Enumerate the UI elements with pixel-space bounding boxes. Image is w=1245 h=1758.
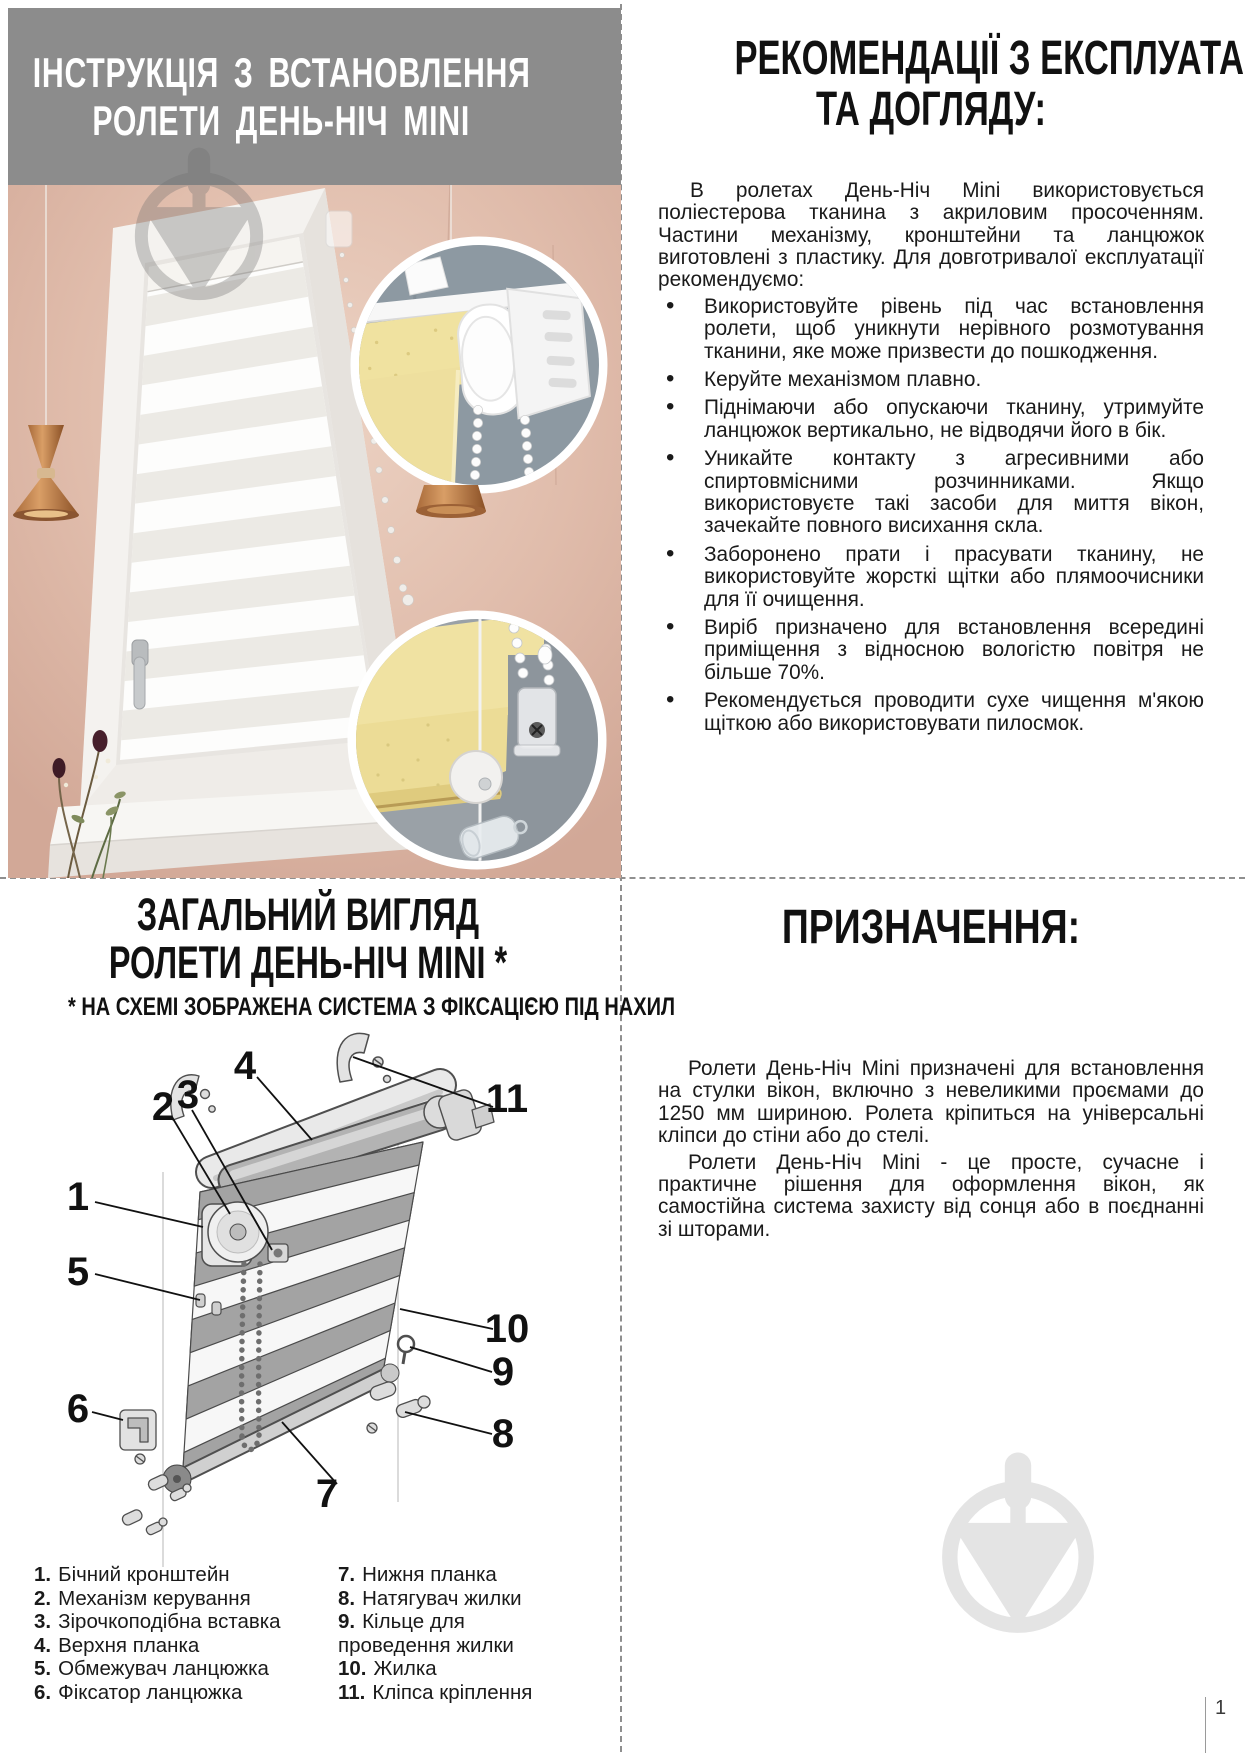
blind-diagram: 1 2 3 4 5 6 7 8 9 10 11 <box>20 1022 600 1567</box>
purpose-title: ПРИЗНАЧЕННЯ: <box>658 903 1204 954</box>
part-item: 5.Обмежувач ланцюжка <box>34 1657 334 1681</box>
product-photo-illustration <box>8 185 621 878</box>
part-item: 9.Кільце для проведення жилки <box>338 1610 563 1657</box>
part-item: 4.Верхня планка <box>34 1634 334 1658</box>
list-item: Використовуйте рівень під час встановлен… <box>658 296 1204 363</box>
callout-3: 3 <box>177 1073 199 1117</box>
mounting-clip-right <box>337 1033 390 1082</box>
parts-list-col1: 1.Бічний кронштейн 2.Механізм керування … <box>34 1563 334 1704</box>
part-item: 6.Фіксатор ланцюжка <box>34 1681 334 1705</box>
overview-subtitle: * НА СХЕМІ ЗОБРАЖЕНА СИСТЕМА З ФІКСАЦІЄЮ… <box>68 993 548 1022</box>
list-item: Піднімаючи або опускаючи тканину, утриму… <box>658 397 1204 442</box>
overview-title-line1: ЗАГАЛЬНИЙ ВИГЛЯД <box>92 891 524 939</box>
recommendations-list: Використовуйте рівень під час встановлен… <box>658 296 1204 735</box>
callout-2: 2 <box>152 1085 174 1129</box>
product-photo <box>8 185 621 878</box>
install-header: ІНСТРУКЦІЯ З ВСТАНОВЛЕННЯ РОЛЕТИ ДЕНЬ-НІ… <box>8 8 621 185</box>
callout-9: 9 <box>492 1350 514 1394</box>
part-item: 8.Натягувач жилки <box>338 1587 563 1611</box>
instruction-page: ІНСТРУКЦІЯ З ВСТАНОВЛЕННЯ РОЛЕТИ ДЕНЬ-НІ… <box>0 0 1245 1758</box>
callout-11: 11 <box>486 1077 528 1121</box>
list-item: Керуйте механізмом плавно. <box>658 369 1204 391</box>
callout-10: 10 <box>485 1307 530 1351</box>
part-item: 2.Механізм керування <box>34 1587 334 1611</box>
mounting-clip <box>326 211 352 247</box>
callout-4: 4 <box>234 1044 257 1088</box>
pendant-lamp-2 <box>416 485 486 518</box>
list-item: Рекомендується проводити сухе чищення м'… <box>658 690 1204 735</box>
list-item: Уникайте контакту з агресивними або спир… <box>658 448 1204 538</box>
install-title-line2: РОЛЕТИ ДЕНЬ-НІЧ MINI <box>93 97 471 144</box>
purpose-section: ПРИЗНАЧЕННЯ: Ролети День-Ніч Mini призна… <box>658 903 1204 1245</box>
wire-ring <box>398 1336 414 1364</box>
callout-6: 6 <box>67 1387 89 1431</box>
callout-8: 8 <box>492 1412 514 1456</box>
callout-1: 1 <box>67 1175 89 1219</box>
page-number: 1 <box>1205 1697 1226 1753</box>
list-item: Заборонено прати і прасувати тканину, не… <box>658 544 1204 611</box>
purpose-paragraph: Ролети День-Ніч Mini - це просте, сучасн… <box>658 1152 1204 1242</box>
purpose-paragraph: Ролети День-Ніч Mini призначені для вста… <box>658 1058 1204 1148</box>
recommendations-title: РЕКОМЕНДАЦІЇ З ЕКСПЛУАТАЦІЇ ТА ДОГЛЯДУ: <box>658 34 1204 136</box>
overview-section: ЗАГАЛЬНИЙ ВИГЛЯД РОЛЕТИ ДЕНЬ-НІЧ MINI * … <box>8 891 608 1022</box>
parts-list-col2: 7.Нижня планка 8.Натягувач жилки 9.Кільц… <box>338 1563 563 1704</box>
callout-7: 7 <box>316 1472 338 1516</box>
overview-title-line2: РОЛЕТИ ДЕНЬ-НІЧ MINI * <box>92 939 524 987</box>
part-item: 7.Нижня планка <box>338 1563 563 1587</box>
part-item: 3.Зірочкоподібна вставка <box>34 1610 334 1634</box>
install-title-line1: ІНСТРУКЦІЯ З ВСТАНОВЛЕННЯ <box>33 49 531 96</box>
recommendations-intro: В ролетах День-Ніч Mini використовується… <box>658 180 1204 292</box>
part-item: 1.Бічний кронштейн <box>34 1563 334 1587</box>
callout-5: 5 <box>67 1250 89 1294</box>
recommendations-section: РЕКОМЕНДАЦІЇ З ЕКСПЛУАТАЦІЇ ТА ДОГЛЯДУ: … <box>658 34 1204 741</box>
part-item: 11.Кліпса кріплення <box>338 1681 563 1705</box>
part-item: 10.Жилка <box>338 1657 563 1681</box>
brand-watermark-icon <box>950 1453 1086 1626</box>
list-item: Виріб призначено для встановлення всеред… <box>658 617 1204 684</box>
